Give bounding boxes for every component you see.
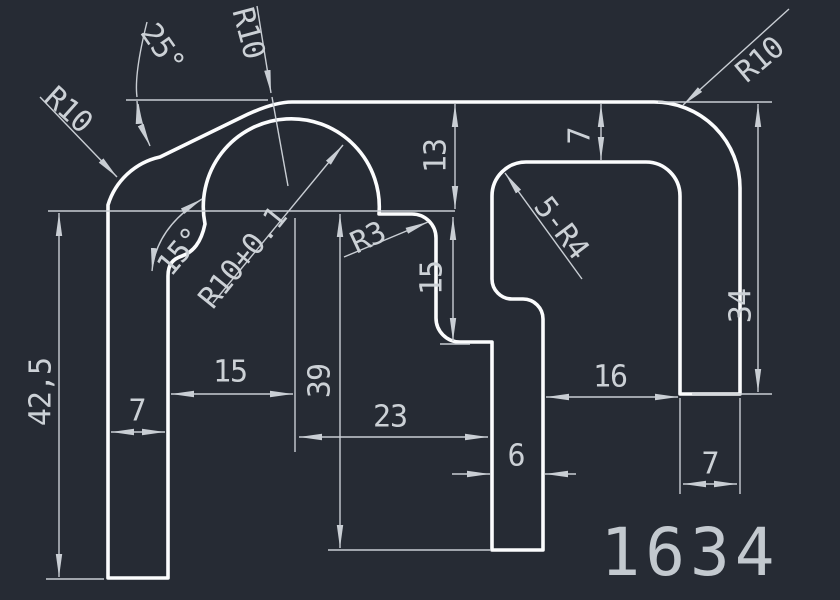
part-number: 1634 <box>601 514 780 591</box>
dim-label-h7-right[interactable]: 7 <box>701 447 718 482</box>
dim-label-v13[interactable]: 13 <box>419 139 454 173</box>
dim-label-h23[interactable]: 23 <box>373 400 407 435</box>
cad-viewport[interactable]: 25° R10 R10 R10 15° R10+0.1 R3 5-R4 13 <box>0 0 840 600</box>
dim-label-h15[interactable]: 15 <box>213 355 247 390</box>
canvas-background <box>0 0 840 600</box>
dim-label-h6[interactable]: 6 <box>507 439 524 474</box>
dim-label-h16[interactable]: 16 <box>593 360 627 395</box>
dim-label-v34[interactable]: 34 <box>724 289 759 323</box>
dim-label-v42-5[interactable]: 42,5 <box>24 358 59 426</box>
drawing-canvas[interactable]: 25° R10 R10 R10 15° R10+0.1 R3 5-R4 13 <box>0 0 840 600</box>
dim-label-v7-top[interactable]: 7 <box>563 127 598 144</box>
dim-label-h7-left[interactable]: 7 <box>128 394 145 429</box>
dim-label-v39[interactable]: 39 <box>303 364 338 398</box>
dim-label-v15[interactable]: 15 <box>415 261 450 295</box>
